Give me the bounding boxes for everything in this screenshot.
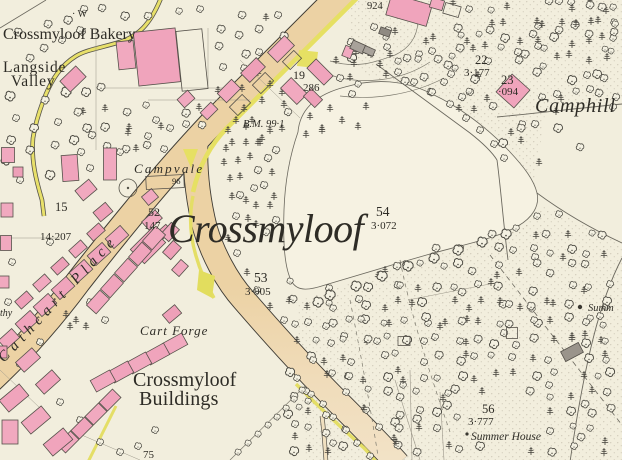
svg-text:52: 52 xyxy=(148,205,160,219)
svg-text:Summer House: Summer House xyxy=(471,431,541,443)
svg-text:Camphill: Camphill xyxy=(535,95,616,117)
svg-text:19: 19 xyxy=(293,68,305,82)
svg-text:Campvale: Campvale xyxy=(134,161,204,176)
svg-text:22: 22 xyxy=(475,53,488,67)
svg-text:B.M. 99·1: B.M. 99·1 xyxy=(243,119,284,130)
svg-text:23: 23 xyxy=(501,73,514,87)
svg-text:3·072: 3·072 xyxy=(371,220,397,232)
svg-text:Valley: Valley xyxy=(11,73,55,90)
svg-text:3·777: 3·777 xyxy=(468,416,494,428)
svg-text:· W: · W xyxy=(72,9,88,20)
svg-text:286: 286 xyxy=(303,82,320,94)
svg-text:924: 924 xyxy=(367,1,384,12)
svg-text:Summ: Summ xyxy=(588,303,614,314)
svg-text:3·177: 3·177 xyxy=(464,67,490,79)
svg-text:Crossmyloof: Crossmyloof xyxy=(168,206,369,251)
svg-text:Crossmyloof Bakery: Crossmyloof Bakery xyxy=(3,26,136,43)
svg-text:53: 53 xyxy=(254,270,268,285)
svg-text:Cart Forge: Cart Forge xyxy=(140,323,208,338)
svg-text:Buildings: Buildings xyxy=(139,388,219,410)
svg-text:15: 15 xyxy=(55,200,68,214)
svg-text:54: 54 xyxy=(376,204,390,219)
svg-text:thy: thy xyxy=(0,308,13,319)
svg-text:75: 75 xyxy=(143,449,155,460)
svg-text:147: 147 xyxy=(144,220,161,232)
svg-text:14·207: 14·207 xyxy=(40,231,72,243)
svg-text:56: 56 xyxy=(482,402,495,416)
svg-text:96: 96 xyxy=(172,176,181,186)
svg-text:3·905: 3·905 xyxy=(245,286,271,298)
svg-text:·094: ·094 xyxy=(498,86,519,98)
